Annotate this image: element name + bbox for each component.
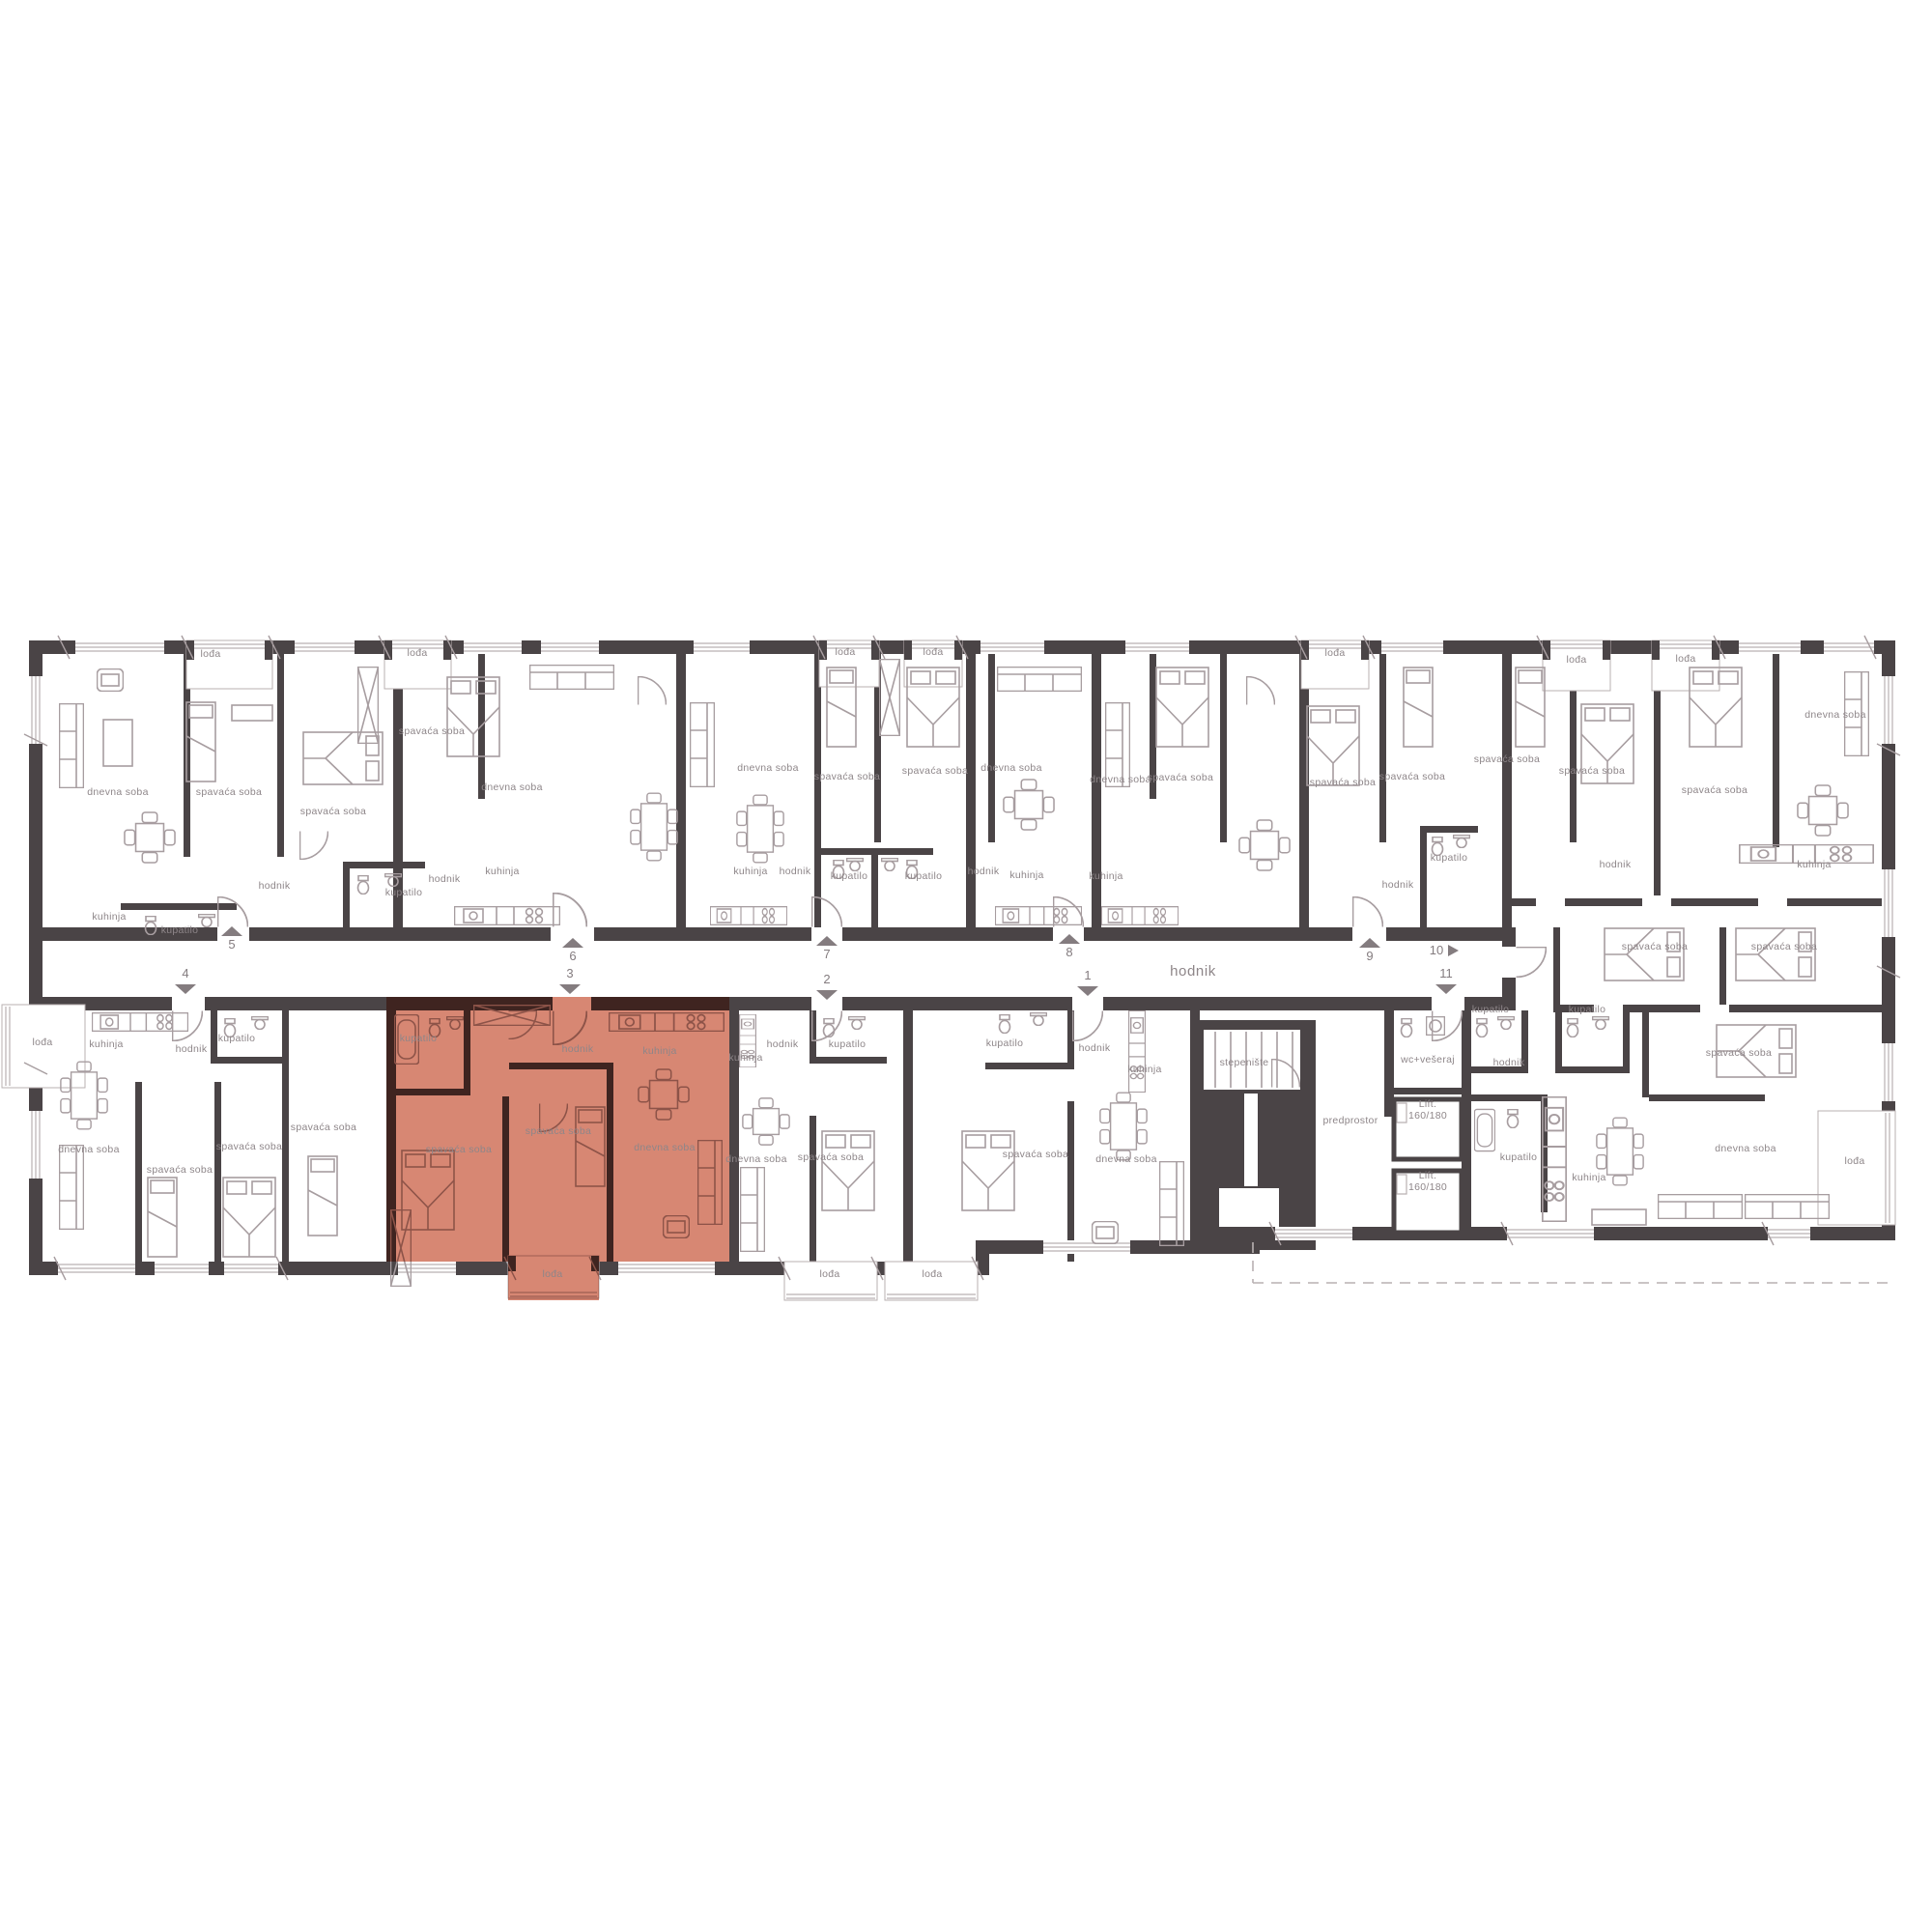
room-label: lođa [819,1268,839,1280]
marker-arrow-icon [559,984,581,994]
room-label: hodnik [562,1043,594,1055]
room-label: spavaća soba [1310,777,1376,788]
room-label: spavaća soba [147,1164,213,1176]
apartment-marker-4: 4 [175,966,196,994]
room-label: spavaća soba [399,725,465,737]
room-label: lođa [835,646,855,658]
corridor-walls [43,927,1516,1010]
room-label: kuhinja [728,1052,762,1064]
floor-plan-page: lođalođalođalođalođalođalođadnevna sobas… [0,0,1932,1932]
marker-number: 3 [566,966,573,980]
room-label: lođa [32,1037,52,1048]
apartment-marker-6: 6 [562,938,583,963]
room-label: dnevna soba [1090,774,1151,785]
room-label: kupatilo [385,887,423,898]
room-label: wc+vešeraj [1400,1054,1455,1065]
room-label: spavaća soba [1682,784,1747,796]
room-label: kupatilo [218,1033,256,1044]
marker-arrow-icon [1059,934,1080,944]
marker-number: 5 [228,937,235,952]
marker-arrow-icon [816,990,838,1000]
room-label: spavaća soba [216,1141,282,1152]
room-label: kuhinja [1797,859,1831,870]
room-label: kupatilo [905,870,943,882]
room-label: kuhinja [1572,1172,1605,1183]
room-label: dnevna soba [1095,1153,1156,1165]
marker-arrow-icon [175,984,196,994]
room-label: kupatilo [1431,852,1468,864]
room-label: dnevna soba [980,762,1041,774]
staircase-core [1196,1020,1316,1250]
room-label: lođa [542,1268,562,1280]
room-label: spavaća soba [291,1122,356,1133]
marker-number: 7 [823,947,830,961]
marker-number: 6 [569,949,576,963]
apartment-marker-2: 2 [816,972,838,1000]
room-label: dnevna soba [87,786,148,798]
room-label: spavaća soba [196,786,262,798]
apartment-marker-3: 3 [559,966,581,994]
room-label: kuhinja [92,911,126,923]
apartment-marker-11: 11 [1435,966,1457,994]
marker-number: 11 [1439,966,1453,980]
room-label: hodnik [1079,1042,1111,1054]
room-label: dnevna soba [725,1153,786,1165]
room-label: lođa [923,646,943,658]
room-label: hodnik [259,880,291,892]
floor-plan: lođalođalođalođalođalođalođadnevna sobas… [0,0,1932,1932]
room-label: spavaća soba [1003,1149,1068,1160]
marker-arrow-icon [1435,984,1457,994]
room-label: stepenište [1220,1057,1269,1068]
room-label: spavaća soba [1559,765,1625,777]
room-label: kupatilo [1472,1004,1510,1015]
room-label: kuhinja [485,866,519,877]
site-boundary-dashes [1253,1242,1895,1283]
room-label: kuhinja [1009,869,1043,881]
room-label: dnevna soba [1715,1143,1776,1154]
apartment-marker-5: 5 [221,926,242,952]
room-label: kupatilo [986,1037,1024,1049]
apartment-marker-10: 10 [1430,943,1459,957]
marker-number: 9 [1366,949,1373,963]
room-label: lođa [1324,647,1345,659]
room-label: predprostor [1323,1115,1378,1126]
marker-arrow-icon [562,938,583,948]
apartment-marker-8: 8 [1059,934,1080,959]
room-label: hodnik [767,1038,799,1050]
marker-arrow-icon [1359,938,1380,948]
room-label: lođa [1844,1155,1864,1167]
room-label: kuhinja [89,1038,123,1050]
room-label: spavaća soba [814,771,880,782]
room-label: spavaća soba [300,806,366,817]
room-label: kuhinja [1089,870,1122,882]
room-label: kuhinja [733,866,767,877]
apartment-marker-9: 9 [1359,938,1380,963]
room-label: dnevna soba [634,1142,695,1153]
apartment-marker-7: 7 [816,936,838,961]
room-label: kupatilo [400,1033,438,1044]
room-label: spavaća soba [1706,1047,1772,1059]
marker-number: 8 [1065,945,1072,959]
room-label: hodnik [780,866,811,877]
room-label: lođa [407,647,427,659]
marker-arrow-icon [816,936,838,946]
marker-arrow-icon [221,926,242,936]
room-label: spavaća soba [1751,941,1817,952]
room-label: spavaća soba [1474,753,1540,765]
room-label: lođa [200,648,220,660]
room-label: kupatilo [829,1038,867,1050]
room-label: hodnik [1493,1057,1525,1068]
room-label: hodnik [1600,859,1632,870]
room-label: hodnik [429,873,461,885]
marker-number: 10 [1430,943,1443,957]
room-label: lođa [1566,654,1586,666]
room-label: spavaća soba [1622,941,1688,952]
apartment-marker-1: 1 [1077,968,1098,996]
room-label: lođa [922,1268,942,1280]
room-label: dnevna soba [737,762,798,774]
marker-number: 1 [1084,968,1091,982]
room-label: spavaća soba [902,765,968,777]
marker-arrow-icon [1077,986,1098,996]
room-label: spavaća soba [526,1125,591,1137]
marker-number: 2 [823,972,830,986]
room-label: spavaća soba [1148,772,1213,783]
room-label: kupatilo [831,870,868,882]
room-label: hodnik [968,866,1000,877]
room-label: kupatilo [161,924,199,936]
room-label: kupatilo [1500,1151,1538,1163]
room-label: kupatilo [1569,1004,1606,1015]
room-label: hodnik [176,1043,208,1055]
room-label: dnevna soba [481,781,542,793]
corridor-label: hodnik [1170,963,1216,980]
room-label: hodnik [1382,879,1414,891]
room-label: spavaća soba [426,1144,492,1155]
room-label: dnevna soba [58,1144,119,1155]
room-label: dnevna soba [1804,709,1865,721]
room-label: spavaća soba [1379,771,1445,782]
room-label: spavaća soba [798,1151,864,1163]
marker-arrow-icon [1448,945,1459,956]
room-label: kuhinja [1127,1064,1161,1075]
room-label: lođa [1675,653,1695,665]
marker-number: 4 [182,966,188,980]
room-label: kuhinja [642,1045,676,1057]
